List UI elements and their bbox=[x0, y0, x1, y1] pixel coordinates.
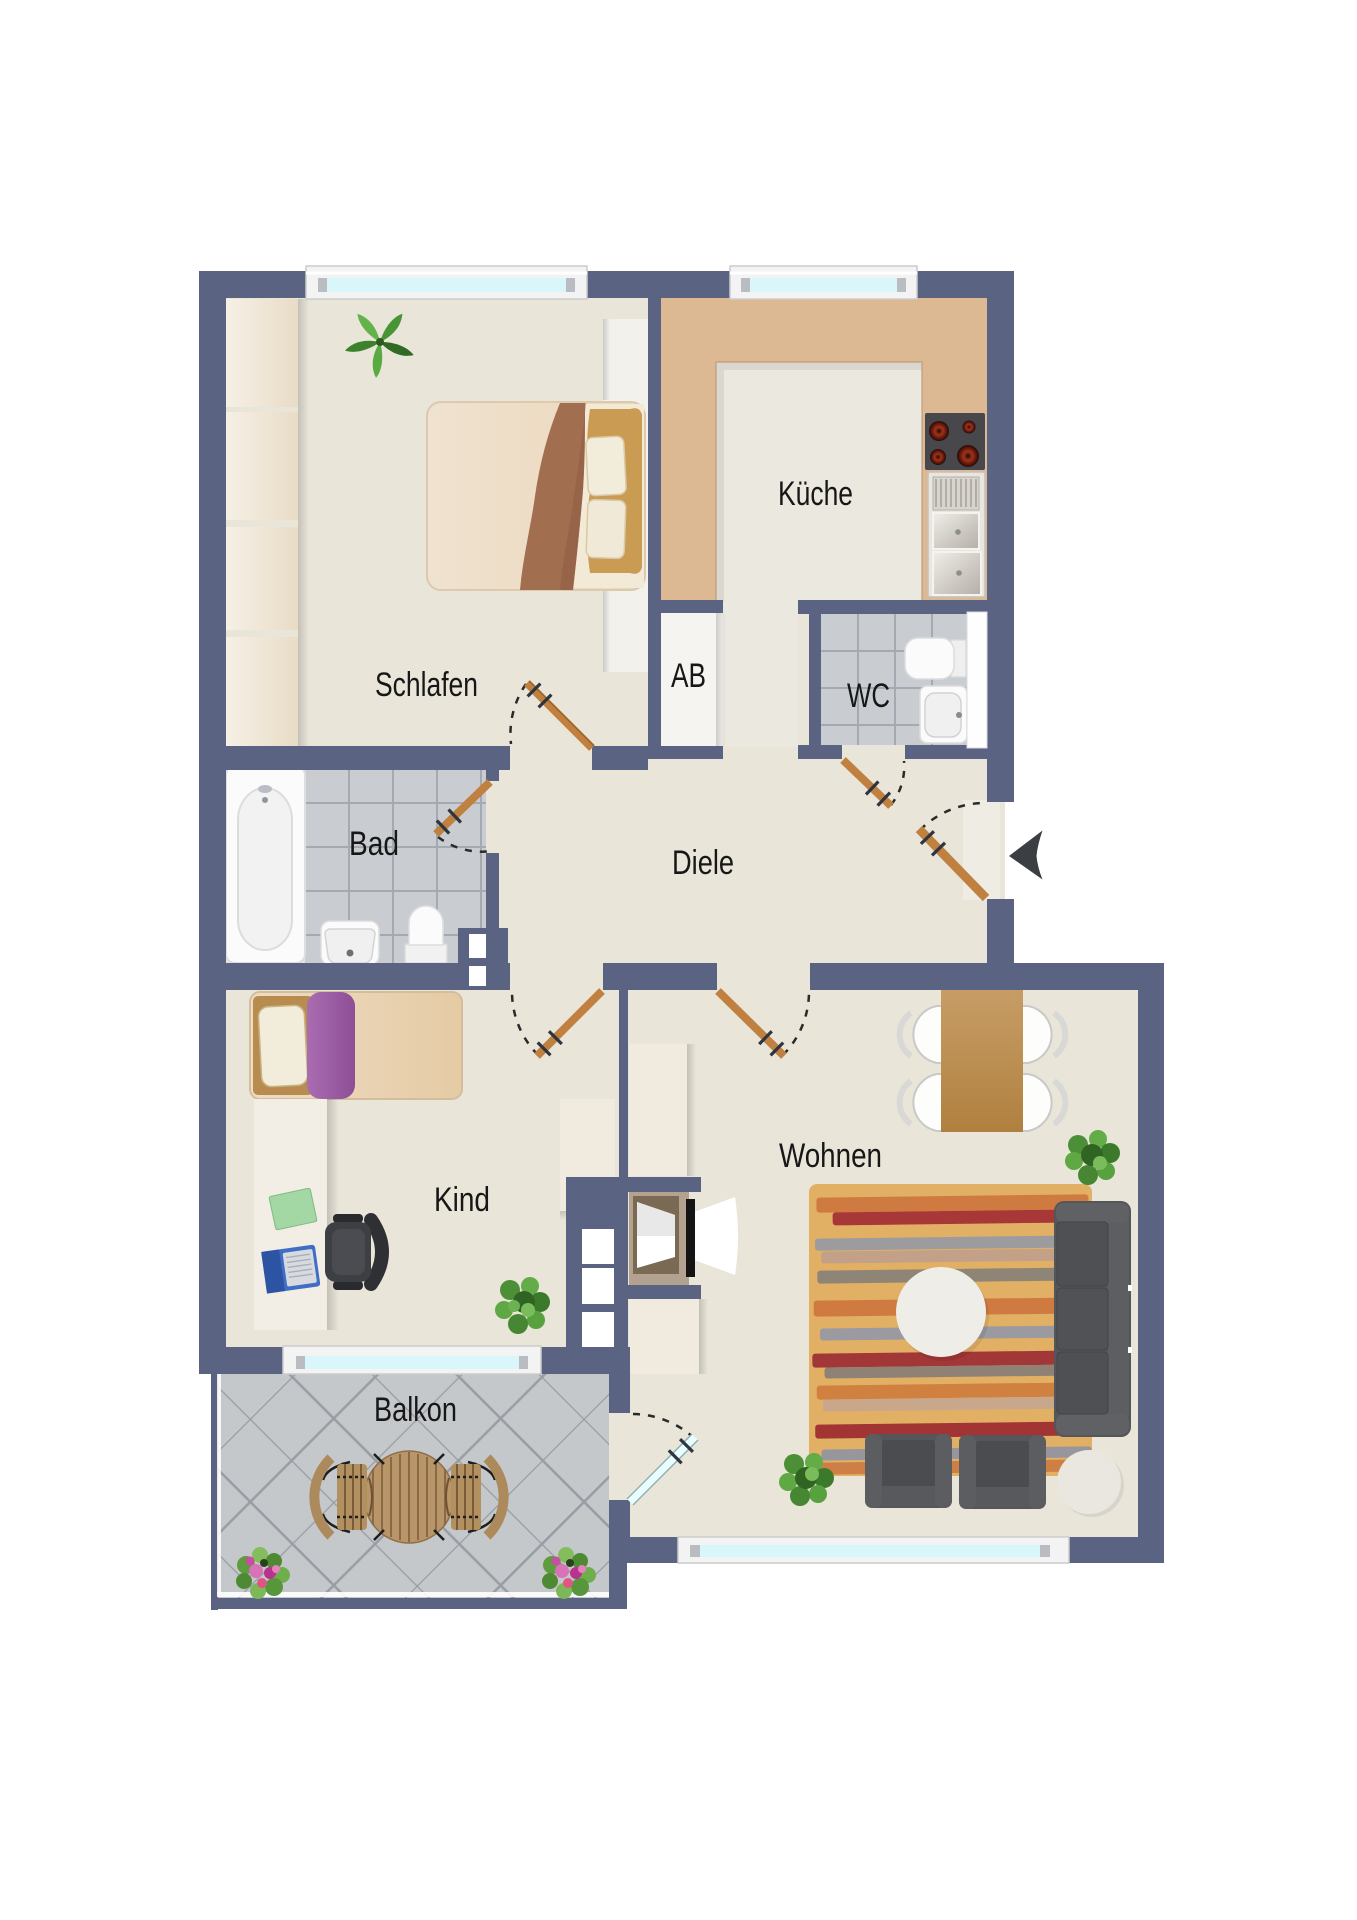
svg-text:Balkon: Balkon bbox=[374, 1391, 457, 1429]
svg-text:Diele: Diele bbox=[672, 844, 734, 882]
svg-text:WC: WC bbox=[847, 677, 890, 715]
svg-text:Küche: Küche bbox=[778, 475, 853, 513]
svg-text:Wohnen: Wohnen bbox=[779, 1137, 882, 1175]
svg-text:Bad: Bad bbox=[349, 825, 399, 863]
svg-text:Kind: Kind bbox=[434, 1181, 490, 1219]
svg-text:Schlafen: Schlafen bbox=[375, 666, 478, 704]
svg-text:AB: AB bbox=[671, 657, 706, 695]
